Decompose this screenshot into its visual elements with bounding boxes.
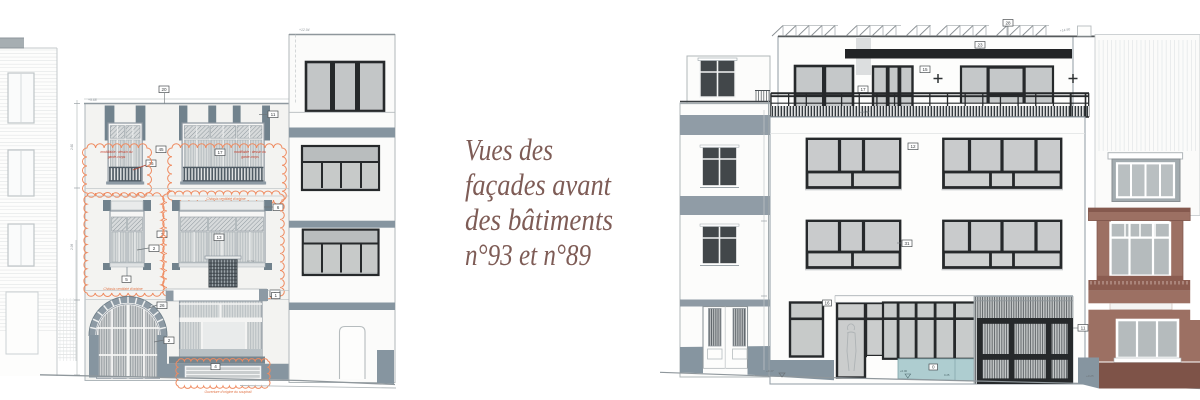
svg-text:45: 45 bbox=[158, 147, 164, 152]
svg-text:16: 16 bbox=[824, 301, 830, 306]
svg-text:+12.04: +12.04 bbox=[299, 28, 310, 32]
svg-text:2.60: 2.60 bbox=[70, 144, 74, 150]
svg-text:5: 5 bbox=[125, 277, 128, 282]
svg-text:1: 1 bbox=[274, 293, 277, 298]
svg-text:17: 17 bbox=[860, 87, 866, 92]
svg-text:31: 31 bbox=[904, 241, 910, 246]
svg-text:15: 15 bbox=[922, 67, 928, 72]
svg-text:28: 28 bbox=[1005, 21, 1011, 26]
svg-text:17: 17 bbox=[217, 150, 223, 155]
svg-text:des bâtiments: des bâtiments bbox=[465, 202, 613, 237]
svg-text:+0.00: +0.00 bbox=[900, 369, 908, 373]
svg-text:+10.52: +10.52 bbox=[860, 110, 870, 114]
svg-text:26: 26 bbox=[159, 303, 165, 308]
svg-text:Châssis ventilaté d'origine: Châssis ventilaté d'origine bbox=[206, 197, 245, 201]
svg-text:n°93 et n°89: n°93 et n°89 bbox=[465, 237, 591, 272]
svg-text:11: 11 bbox=[271, 112, 276, 117]
svg-text:+0.25: +0.25 bbox=[1086, 374, 1094, 378]
svg-text:12: 12 bbox=[910, 144, 916, 149]
svg-text:10.52: 10.52 bbox=[247, 259, 255, 263]
svg-text:2: 2 bbox=[153, 246, 156, 251]
svg-text:+9.68: +9.68 bbox=[88, 98, 97, 102]
svg-text:0.25: 0.25 bbox=[944, 373, 950, 377]
svg-text:+0.17: +0.17 bbox=[766, 369, 774, 373]
svg-text:2: 2 bbox=[168, 338, 171, 343]
svg-text:modifiable : dessin du: modifiable : dessin du bbox=[101, 150, 133, 154]
svg-text:20: 20 bbox=[161, 87, 167, 92]
svg-text:6: 6 bbox=[277, 205, 280, 210]
svg-text:Vues des: Vues des bbox=[465, 132, 553, 167]
svg-text:2.98: 2.98 bbox=[70, 244, 74, 250]
svg-text:façades avant: façades avant bbox=[465, 167, 612, 202]
svg-text:garde-corps: garde-corps bbox=[108, 155, 126, 159]
svg-text:modifiable : dessin du: modifiable : dessin du bbox=[234, 150, 266, 154]
svg-text:23: 23 bbox=[977, 43, 983, 48]
svg-text:4: 4 bbox=[214, 364, 217, 369]
svg-text:11: 11 bbox=[1081, 326, 1086, 331]
svg-text:0: 0 bbox=[932, 365, 935, 370]
svg-text:Ouverture d'origine du soupira: Ouverture d'origine du soupirail bbox=[204, 390, 251, 394]
svg-text:garde-corps: garde-corps bbox=[241, 155, 259, 159]
svg-text:13: 13 bbox=[216, 235, 222, 240]
